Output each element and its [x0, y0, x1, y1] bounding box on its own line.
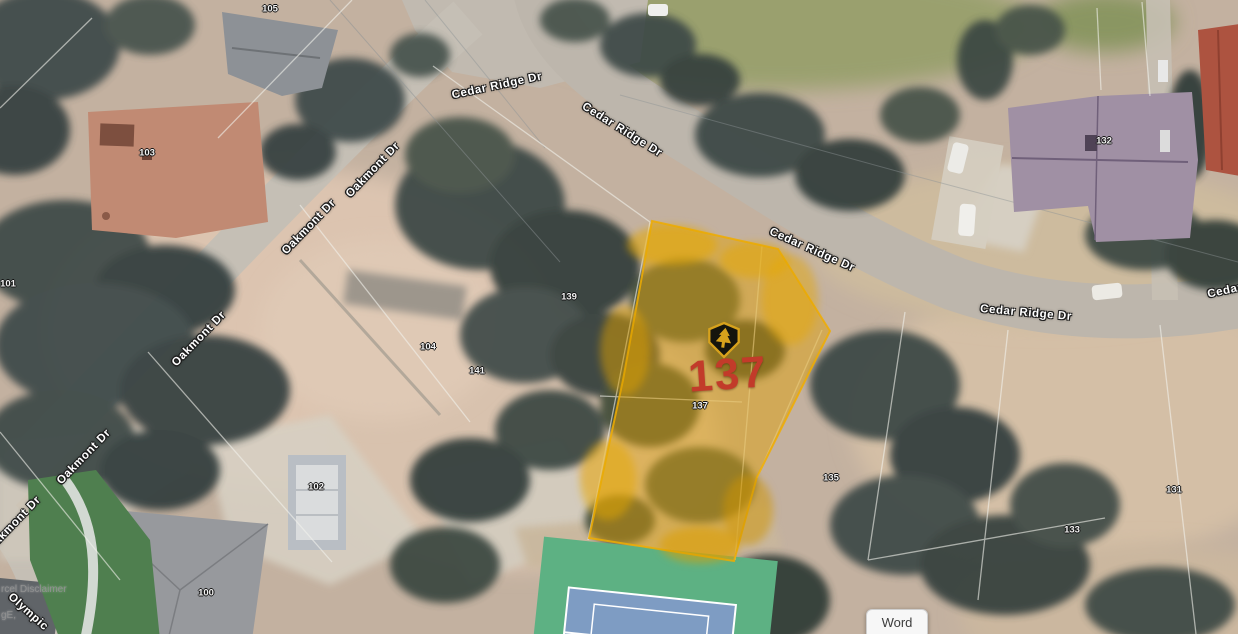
parcel-disclaimer-fragment: gE,: [1, 610, 16, 622]
parcel-disclaimer-text: rcel Disclaimer: [1, 584, 67, 596]
selected-parcel-marker[interactable]: [707, 321, 741, 359]
taskbar-tooltip: Word: [866, 609, 928, 634]
map-viewport[interactable]: Cedar Ridge DrCedar Ridge DrCedar Ridge …: [0, 0, 1238, 634]
satellite-imagery: [0, 0, 1238, 634]
tree-badge-icon: [707, 321, 741, 359]
